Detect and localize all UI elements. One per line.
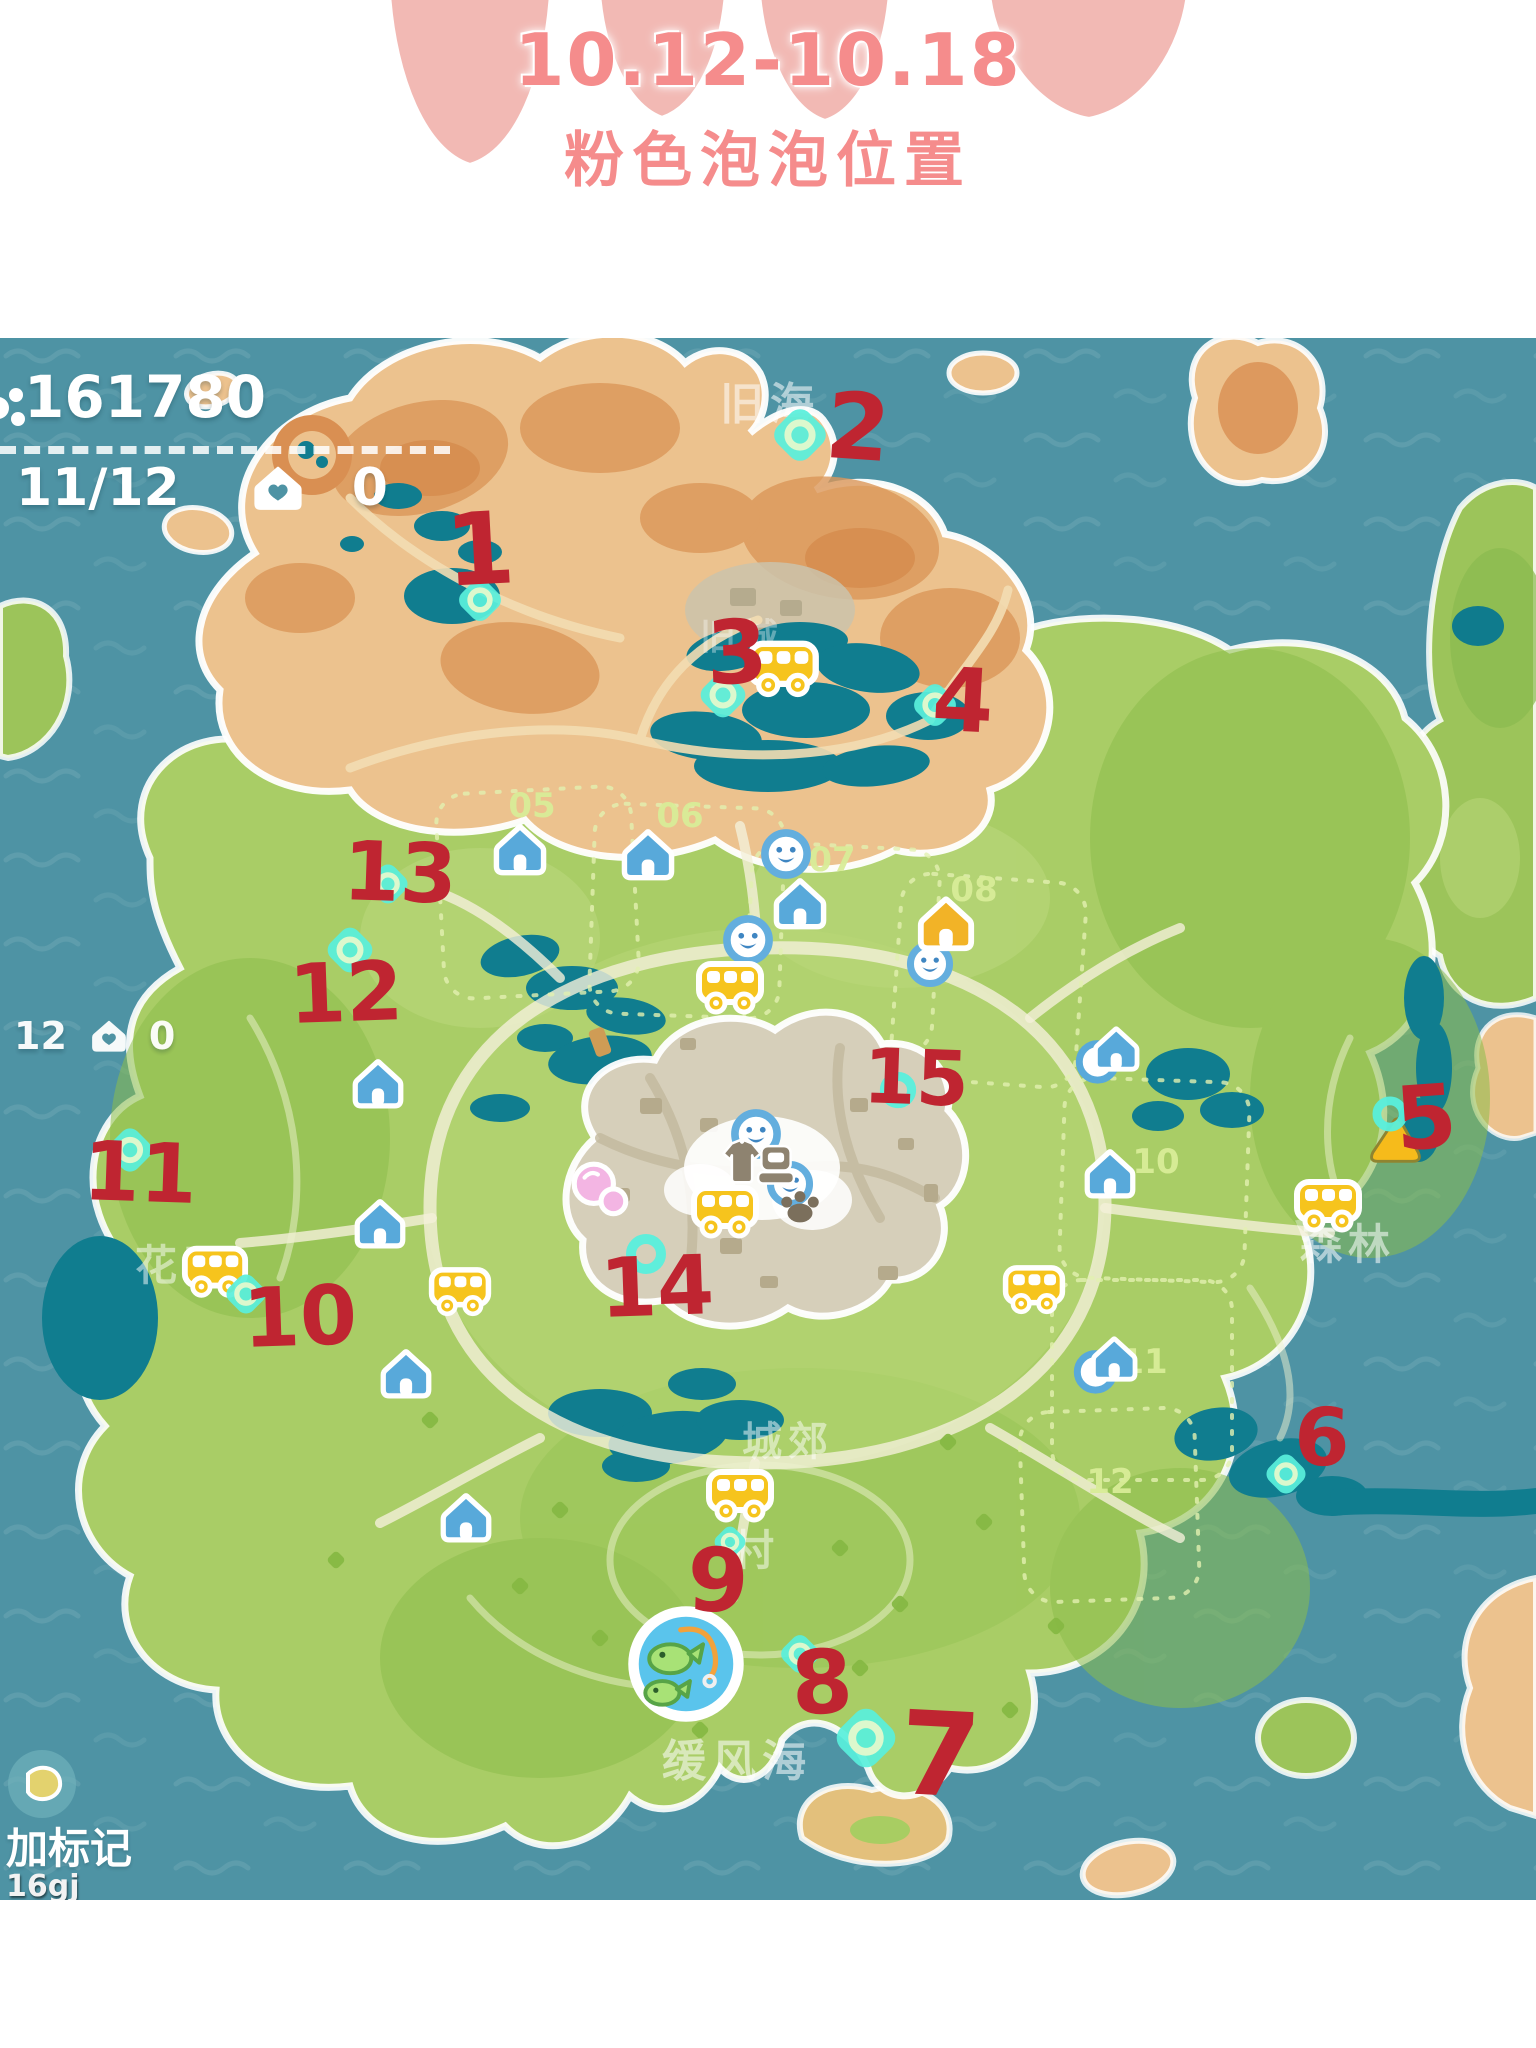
bubble-progress: 11/12 [16,462,180,514]
marker-number-5: 5 [1392,1072,1459,1164]
house-icon [438,1490,494,1546]
hud-progress-row-partial: 12 0 [14,1016,175,1056]
paw-shop-icon [775,1181,825,1231]
header: 10.12-10.18 粉色泡泡位置 [0,0,1536,338]
bus-stop-icon [694,954,766,1019]
bus-stop-icon [427,1260,493,1319]
house-icon [1070,1332,1143,1396]
marker-number-10: 10 [242,1275,359,1361]
marker-number-13: 13 [342,831,459,917]
date-range: 10.12-10.18 [0,18,1536,102]
pink-balloon-icon [567,1157,633,1223]
marker-number-14: 14 [599,1245,716,1331]
home-count-partial: 0 [149,1017,175,1055]
hud-divider [0,446,450,454]
marker-number-11: 11 [82,1131,199,1217]
plot-number-label: 05 [508,789,555,823]
house-icon [491,821,549,879]
house-icon [619,826,677,884]
marker-number-1: 1 [443,498,518,602]
region-label: 缓风海 [662,1740,812,1784]
currency-amount: 161780 [24,368,266,426]
home-icon [250,460,306,516]
marker-number-4: 4 [930,655,996,746]
currency-paw-icon [0,386,26,430]
map-item-layer: 05060708101112旧海旧城花田森林城郊村缓风海123456789101… [0,338,1536,1900]
house-icon [378,1346,434,1402]
marker-number-9: 9 [686,1536,750,1626]
marker-number-3: 3 [705,608,769,698]
bubble-progress-partial: 12 [14,1017,67,1055]
house-icon [350,1056,406,1112]
plot-number-label: 12 [1086,1465,1133,1499]
region-label: 城郊 [742,1422,834,1462]
add-marker-button[interactable]: 加标记 [6,1828,132,1870]
plot-number-label: 10 [1132,1145,1179,1179]
house-icon [771,875,829,933]
marker-number-6: 6 [1293,1397,1351,1479]
marker-number-8: 8 [789,1637,855,1728]
yellow-house-icon [915,893,977,955]
house-icon [1082,1146,1138,1202]
home-icon [89,1016,129,1056]
house-icon [1072,1022,1145,1086]
bus-stop-icon [1001,1258,1067,1317]
page-title: 粉色泡泡位置 [0,112,1536,199]
bus-stop-icon [1292,1172,1364,1237]
hud-progress-row: 11/12 0 [16,460,388,516]
map-viewport[interactable]: 05060708101112旧海旧城花田森林城郊村缓风海123456789101… [0,338,1536,1900]
marker-number-15: 15 [862,1038,970,1118]
resident-face-icon [759,827,813,881]
house-icon [352,1196,408,1252]
plot-number-label: 07 [808,843,855,877]
marker-number-12: 12 [288,951,405,1037]
marker-number-2: 2 [823,380,893,476]
bus-stop-icon [704,1462,776,1527]
watermark: 16gj [6,1872,80,1900]
guide-page: 10.12-10.18 粉色泡泡位置 [0,0,1536,2048]
marker-number-7: 7 [897,1696,984,1816]
home-count: 0 [352,462,388,514]
